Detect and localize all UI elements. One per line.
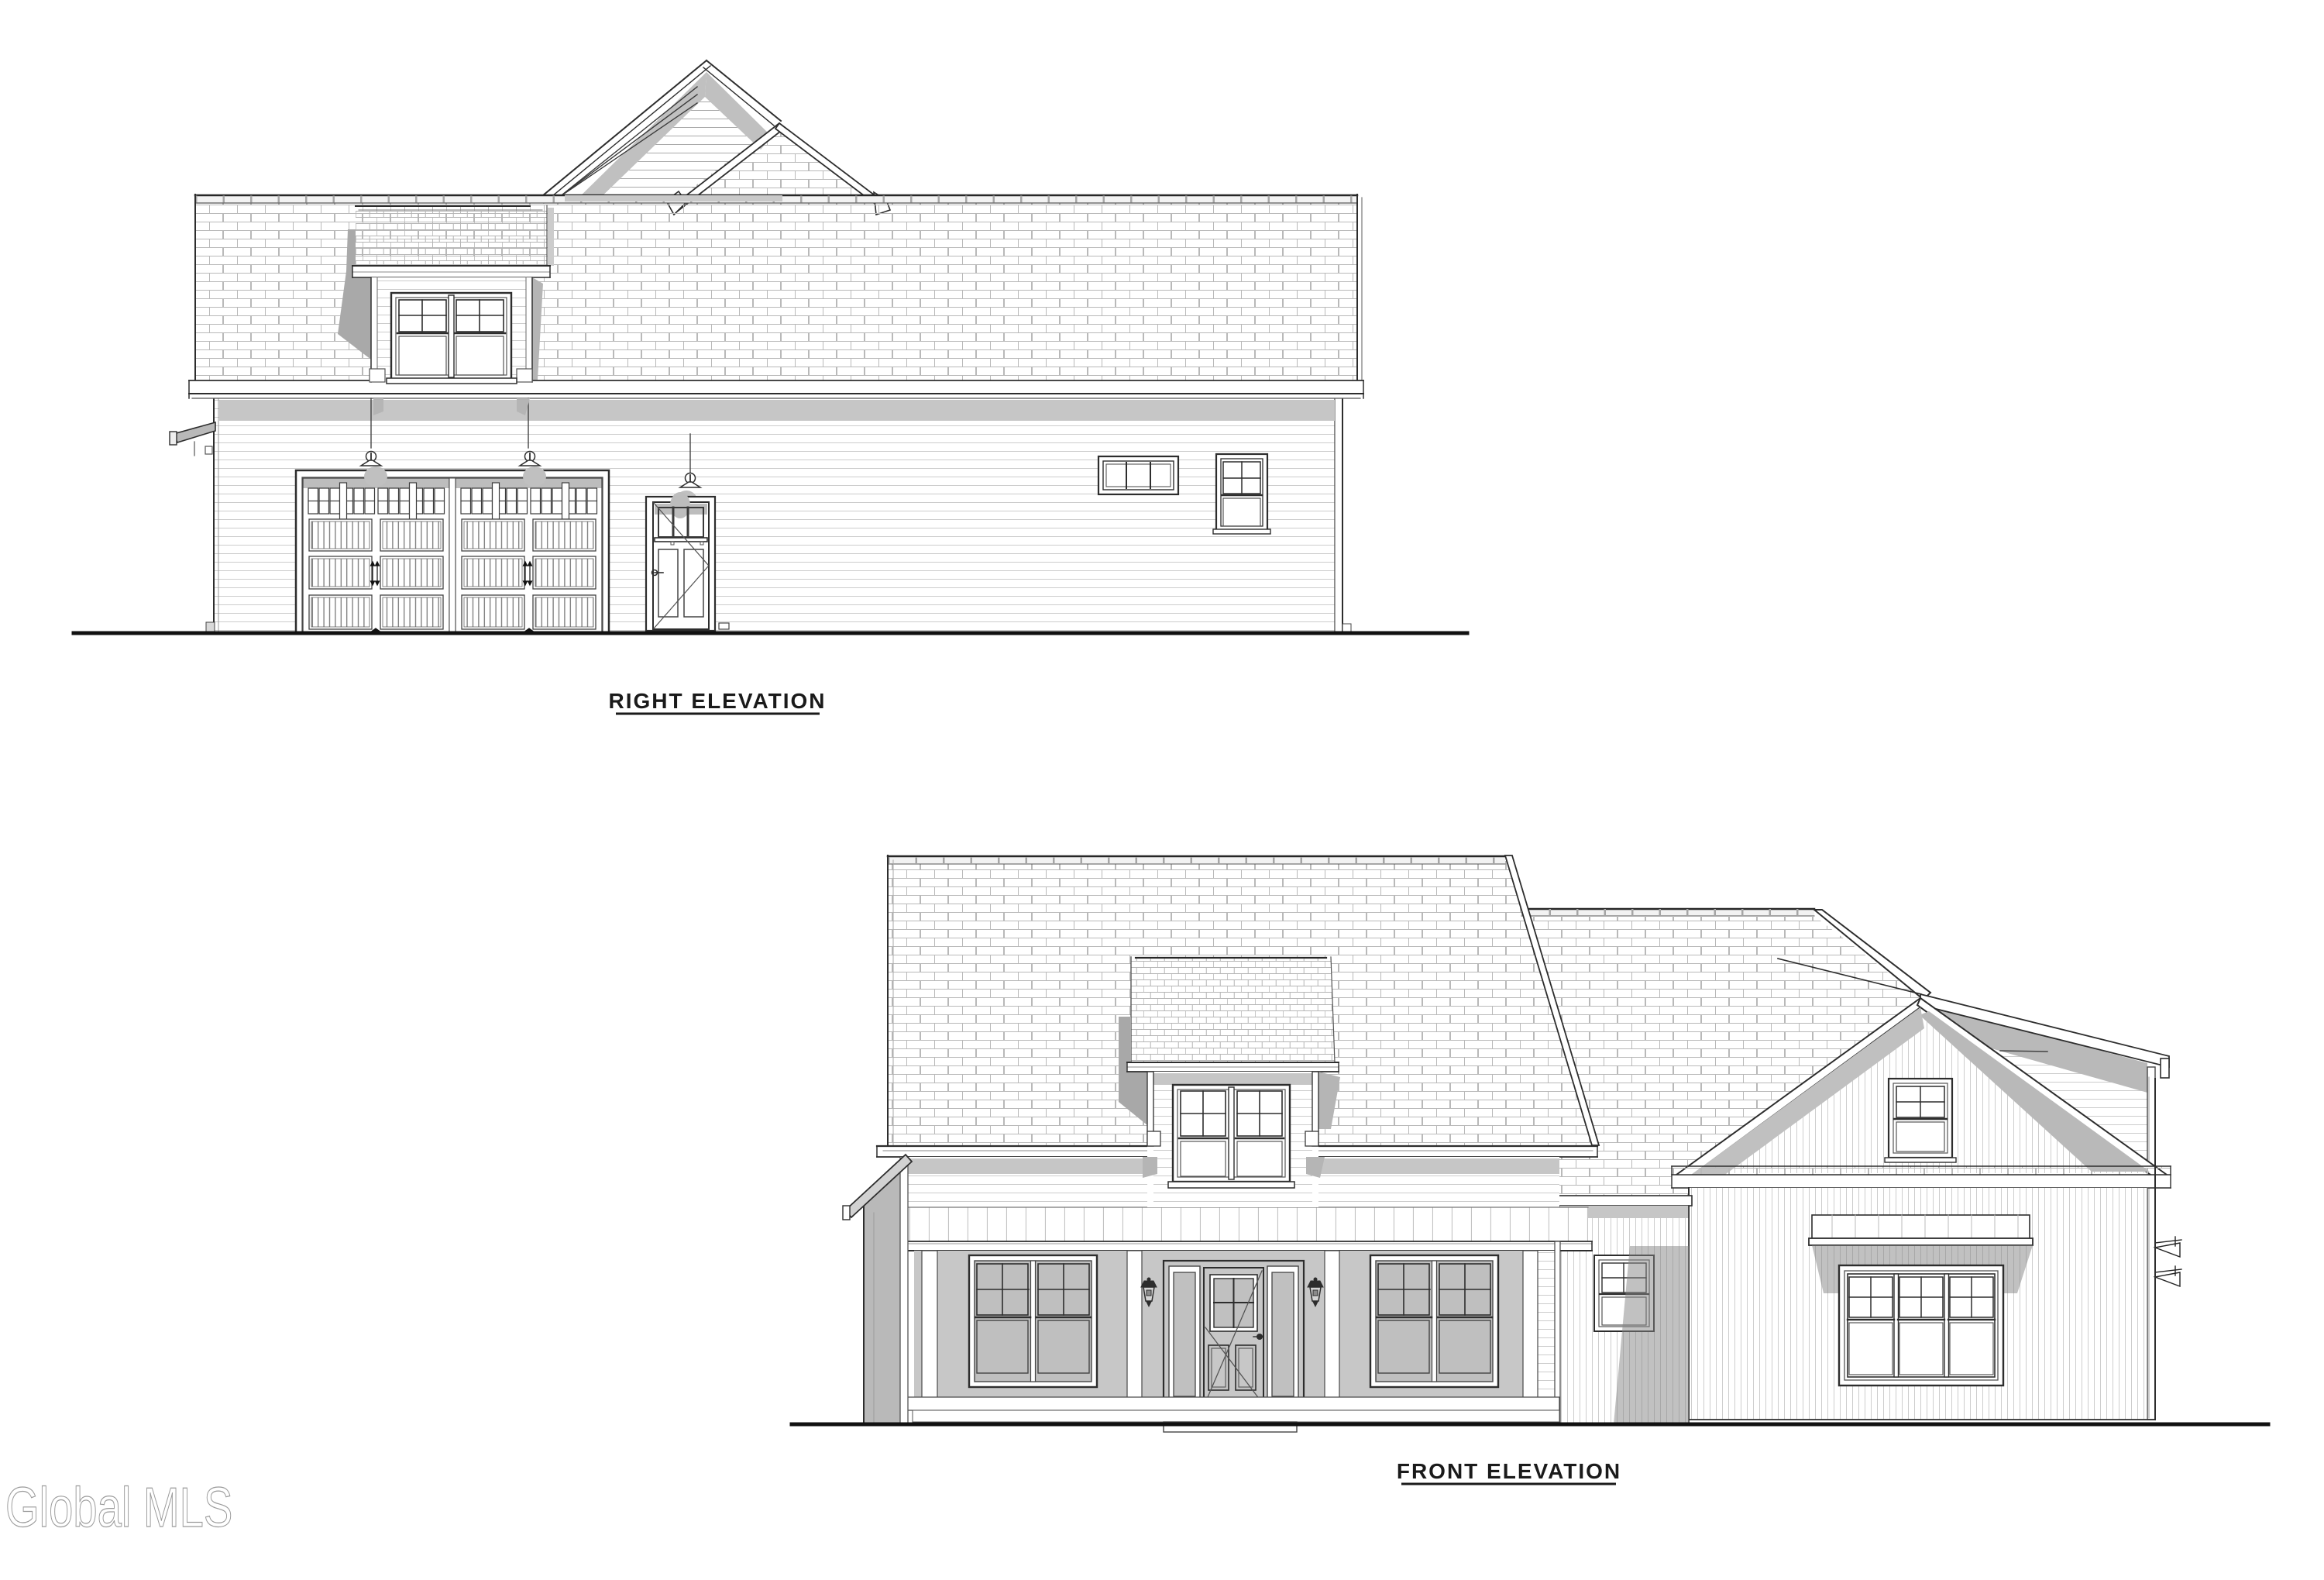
svg-text:Global MLS: Global MLS <box>5 1476 232 1538</box>
svg-text:FRONT ELEVATION: FRONT ELEVATION <box>1397 1459 1621 1483</box>
svg-text:RIGHT ELEVATION: RIGHT ELEVATION <box>609 689 827 713</box>
